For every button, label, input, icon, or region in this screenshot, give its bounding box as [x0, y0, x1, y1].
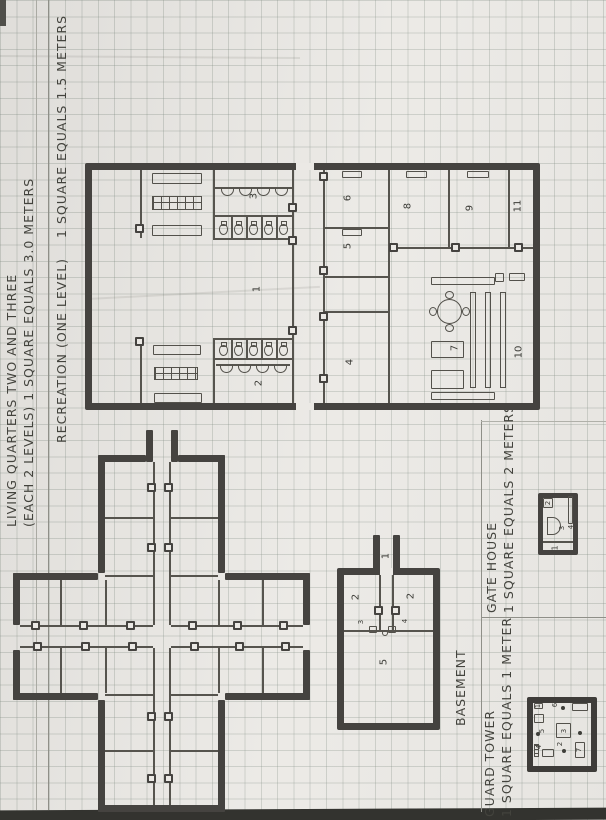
- door-marker: [33, 642, 42, 651]
- toilet: [234, 224, 243, 235]
- wall-segment: [105, 575, 153, 577]
- chair: [562, 749, 566, 753]
- stall-wall: [215, 358, 292, 360]
- room-label-1: 1: [252, 286, 263, 292]
- room-label-5: 5: [343, 243, 354, 249]
- door-marker: [233, 621, 242, 630]
- room-label-3: 3: [249, 193, 260, 199]
- chair: [445, 291, 454, 299]
- room-label-4: 4: [345, 359, 356, 365]
- chair: [445, 324, 454, 332]
- closet: [467, 171, 489, 178]
- wall-segment: [508, 170, 510, 248]
- recreation-entrance-top: [296, 163, 314, 170]
- door-marker: [147, 712, 156, 721]
- corridor-wall: [392, 575, 394, 632]
- guard-tower-label-5: 5: [538, 729, 546, 733]
- wall-segment: [105, 750, 153, 752]
- guard-tower-label-2: 2: [556, 742, 564, 746]
- wall-segment: [98, 455, 146, 462]
- wall-segment: [373, 535, 380, 575]
- toilet: [234, 345, 243, 356]
- shelf-bar: [500, 292, 506, 388]
- wall-segment: [543, 541, 573, 543]
- basement-room-label-5: 5: [379, 659, 390, 665]
- drain: [382, 630, 388, 636]
- door-marker: [374, 606, 383, 615]
- guard-tower-label-3: 3: [560, 729, 568, 733]
- door-marker: [128, 642, 137, 651]
- wall-segment: [171, 430, 178, 462]
- wall-segment: [140, 338, 142, 403]
- wall-segment: [213, 338, 292, 340]
- wall-segment: [13, 693, 98, 700]
- bench: [154, 393, 202, 403]
- corridor-wall: [379, 575, 381, 632]
- door-marker: [135, 337, 144, 346]
- wall-segment: [325, 276, 388, 278]
- wall-segment: [98, 700, 105, 812]
- cabinet: [542, 749, 554, 757]
- door-marker: [288, 203, 297, 212]
- guard-tower-title: GUARD TOWER 1 SQUARE EQUALS 1 METER: [481, 617, 515, 817]
- scan-edge-bottom: [0, 808, 606, 820]
- wall-segment: [213, 338, 215, 403]
- door-marker: [31, 621, 40, 630]
- cabinet: [509, 273, 525, 281]
- bench: [152, 225, 202, 236]
- stall-wall: [215, 215, 292, 217]
- room-label-8: 8: [403, 203, 414, 209]
- wall-segment: [323, 170, 325, 403]
- wall-segment: [218, 455, 225, 573]
- basement-room-label-2-right: 2: [406, 593, 417, 599]
- recreation-title: RECREATION (ONE LEVEL) 1 SQUARE EQUALS 1…: [53, 15, 70, 443]
- gate-house-title-name: GATE HOUSE: [483, 404, 500, 613]
- door-marker: [451, 243, 460, 252]
- door-marker: [147, 774, 156, 783]
- wall-segment: [448, 170, 450, 248]
- room-label-9: 9: [465, 205, 476, 211]
- door-marker: [147, 483, 156, 492]
- stall-divider: [276, 216, 278, 240]
- closet: [342, 229, 362, 236]
- gate-house-title: GATE HOUSE 1 SQUARE EQUALS 2 METERS: [483, 404, 517, 613]
- scanned-floor-plan-page: LIVING QUARTERS TWO AND THREE (EACH 2 LE…: [0, 0, 606, 820]
- door-marker: [389, 243, 398, 252]
- door-marker: [319, 312, 328, 321]
- room-label-11: 11: [513, 200, 524, 213]
- stall-divider: [246, 340, 248, 359]
- toilet: [279, 345, 288, 356]
- wall-segment: [105, 580, 107, 625]
- door-leaf: [388, 626, 396, 633]
- door-marker: [164, 483, 173, 492]
- wall-segment: [60, 648, 62, 693]
- paper-crease: [0, 55, 300, 59]
- door-marker: [190, 642, 199, 651]
- wall-segment: [262, 648, 264, 693]
- wall-segment: [98, 805, 225, 812]
- recreation-title-scale: 1 SQUARE EQUALS 1.5 METERS: [53, 15, 70, 238]
- cabinet: [572, 703, 588, 711]
- cabinet: [534, 714, 544, 723]
- stall-divider: [261, 340, 263, 359]
- door-marker: [164, 712, 173, 721]
- door-marker: [79, 621, 88, 630]
- gate-house-title-scale: 1 SQUARE EQUALS 2 METERS: [500, 404, 517, 613]
- wall-segment: [98, 455, 105, 573]
- living-quarters-title-line1: LIVING QUARTERS TWO AND THREE: [3, 178, 20, 527]
- wall-segment: [213, 238, 292, 240]
- basement-outline: [337, 568, 440, 730]
- living-quarters-title: LIVING QUARTERS TWO AND THREE (EACH 2 LE…: [3, 178, 37, 527]
- toilet: [249, 345, 258, 356]
- door-marker: [147, 543, 156, 552]
- kitchen-unit: [431, 370, 464, 389]
- gate-house-label-3: 3: [558, 526, 566, 530]
- door-marker: [279, 621, 288, 630]
- door-marker: [319, 172, 328, 181]
- mess-table: [154, 367, 198, 380]
- wall-segment: [388, 170, 390, 403]
- gate-house-label-4: 4: [567, 525, 575, 529]
- counter: [431, 277, 495, 285]
- wall-segment: [13, 573, 98, 580]
- basement-door-label-4: 4: [401, 619, 409, 623]
- chair: [429, 307, 437, 316]
- stall-divider: [231, 216, 233, 240]
- door-marker: [514, 243, 523, 252]
- stall-divider: [246, 216, 248, 240]
- wall-segment: [171, 750, 218, 752]
- shelf-bar: [485, 292, 491, 388]
- wall-segment: [13, 573, 20, 625]
- chair: [462, 307, 470, 316]
- door-marker: [281, 642, 290, 651]
- wall-segment: [213, 170, 215, 240]
- room-label-6: 6: [343, 195, 354, 201]
- door-marker: [188, 621, 197, 630]
- door-marker: [391, 606, 400, 615]
- basement-stub-gap: [380, 568, 393, 575]
- wall-segment: [393, 535, 400, 575]
- mess-table: [152, 196, 202, 210]
- chair: [561, 706, 565, 710]
- door-marker: [164, 774, 173, 783]
- wall-segment: [171, 575, 218, 577]
- gate-house-label-1: 1: [551, 545, 560, 550]
- closet: [342, 171, 362, 178]
- basement-door-label-3: 3: [357, 620, 365, 624]
- gate-house-label-2: 2: [544, 501, 552, 505]
- stall-divider: [231, 340, 233, 359]
- door-marker: [319, 374, 328, 383]
- margin-line-left: [48, 0, 49, 810]
- wall-segment: [218, 648, 220, 693]
- guard-tower-label-6: 6: [551, 703, 559, 707]
- wall-segment: [262, 580, 264, 625]
- stall-divider: [261, 216, 263, 240]
- door-marker: [319, 266, 328, 275]
- toilet: [219, 224, 228, 235]
- door-marker: [164, 543, 173, 552]
- wall-segment: [303, 650, 310, 700]
- wall-segment: [325, 311, 388, 313]
- door-marker: [135, 224, 144, 233]
- toilet: [264, 224, 273, 235]
- wall-segment: [218, 700, 225, 812]
- toilet: [264, 345, 273, 356]
- guard-tower-title-scale: 1 SQUARE EQUALS 1 METER: [498, 617, 515, 817]
- scan-edge-top-left: [0, 0, 6, 26]
- room-label-7: 7: [450, 345, 461, 351]
- toilet: [279, 224, 288, 235]
- door-marker: [235, 642, 244, 651]
- wall-segment: [146, 430, 153, 462]
- closet: [406, 171, 427, 178]
- gate-bar: [568, 496, 573, 524]
- wall-segment: [171, 694, 218, 696]
- basement-room-label-1: 1: [381, 553, 392, 559]
- cabinet: [495, 273, 504, 282]
- basement-title: BASEMENT: [452, 649, 469, 726]
- door-marker: [288, 236, 297, 245]
- wall-segment: [105, 694, 153, 696]
- guard-tower-title-name: GUARD TOWER: [481, 617, 498, 817]
- chair: [578, 731, 582, 735]
- wall-segment: [171, 517, 218, 519]
- bench: [152, 173, 202, 184]
- door-marker: [126, 621, 135, 630]
- wall-segment: [390, 247, 533, 249]
- wall-segment: [303, 573, 310, 625]
- wall-segment: [60, 580, 62, 625]
- wall-segment: [105, 517, 153, 519]
- wall-segment: [105, 648, 107, 693]
- wall-segment: [218, 580, 220, 625]
- recreation-entrance-bottom: [296, 403, 314, 410]
- shelf-bar: [470, 292, 476, 388]
- living-quarters-title-line2: (EACH 2 LEVELS) 1 SQUARE EQUALS 3.0 METE…: [20, 178, 37, 527]
- bench: [153, 345, 201, 355]
- door-marker: [288, 326, 297, 335]
- wall-segment: [13, 650, 20, 700]
- door-leaf: [369, 626, 377, 633]
- room-label-2: 2: [254, 380, 265, 386]
- wall-segment: [225, 573, 310, 580]
- wall-segment: [225, 693, 310, 700]
- counter: [431, 392, 495, 400]
- toilet: [249, 224, 258, 235]
- toilet: [219, 345, 228, 356]
- guard-tower-label-7: 7: [575, 748, 583, 752]
- guard-tower-label-4: 4: [535, 745, 543, 749]
- basement-room-label-2-left: 2: [351, 594, 362, 600]
- stall-divider: [276, 340, 278, 359]
- recreation-title-name: RECREATION (ONE LEVEL): [53, 258, 70, 443]
- round-table: [437, 299, 462, 324]
- room-label-10: 10: [514, 346, 525, 359]
- door-marker: [81, 642, 90, 651]
- guard-tower-label-1: 1: [534, 704, 542, 708]
